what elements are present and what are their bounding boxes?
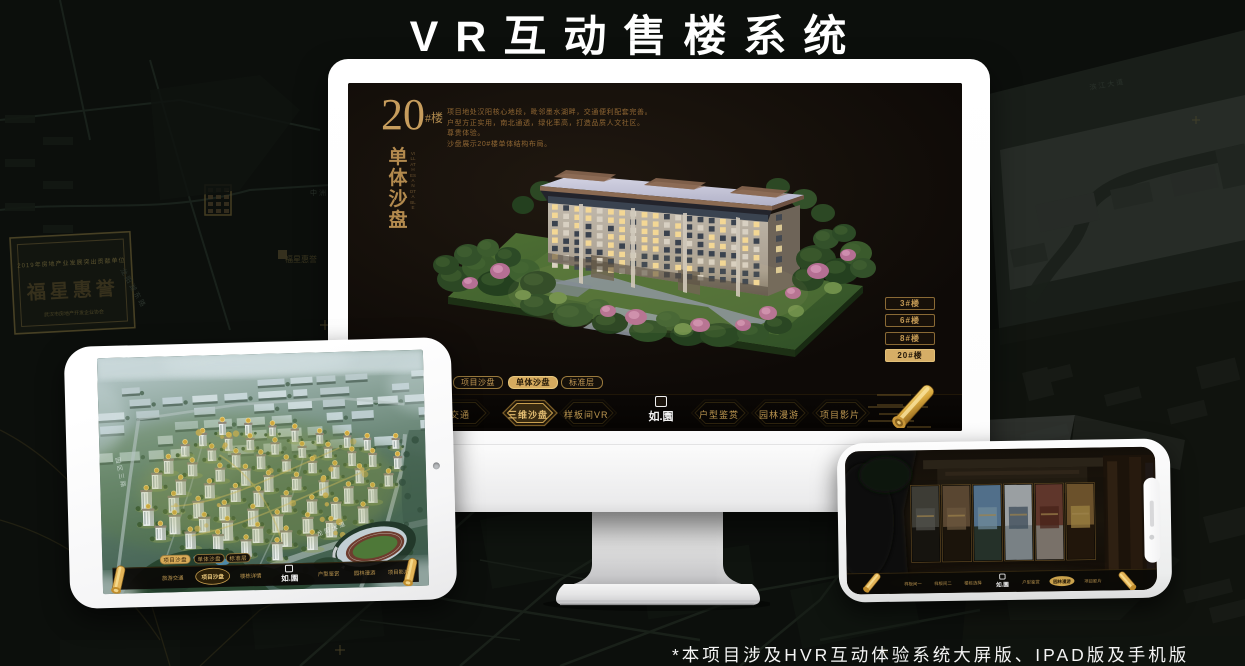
svg-text:如.園: 如.園 [996, 580, 1009, 588]
svg-text:如.園: 如.園 [281, 573, 299, 583]
svg-text:福星惠誉: 福星惠誉 [285, 254, 317, 264]
